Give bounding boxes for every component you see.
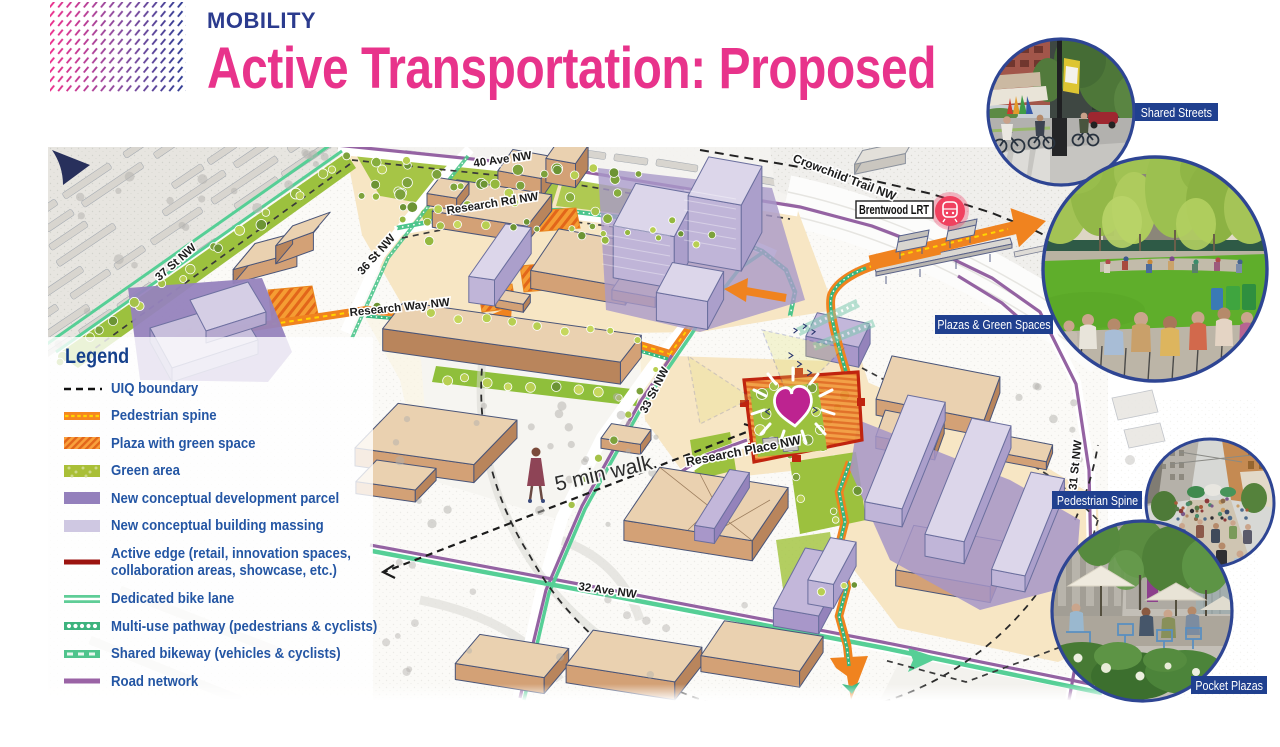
svg-text:Brentwood LRT: Brentwood LRT [859,203,929,217]
